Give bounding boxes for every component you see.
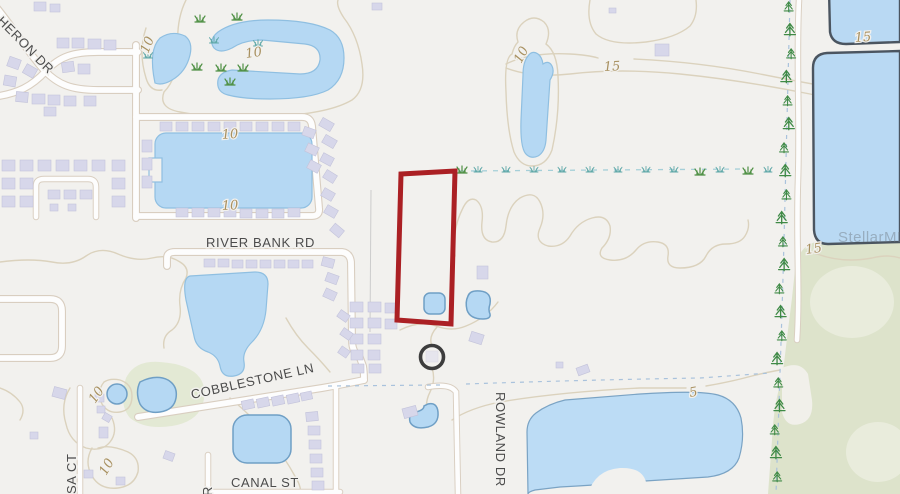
watermark-text: StellarMLS — [838, 229, 900, 246]
street-label-sa-ct: SA CT — [64, 453, 79, 494]
street-label-rowland-dr: ROWLAND DR — [493, 392, 508, 487]
map-canvas[interactable]: N HERON DR RIVER BANK RD COBBLESTONE LN … — [0, 0, 900, 494]
street-label-partial-dr: DR — [200, 486, 215, 494]
contour-label-10: 10 — [221, 198, 238, 214]
street-label-canal-st: CANAL ST — [231, 475, 299, 490]
contour-label-10: 10 — [244, 45, 262, 62]
contour-label-15: 15 — [804, 241, 822, 258]
street-label-river-bank-rd: RIVER BANK RD — [206, 235, 315, 250]
contour-label-15: 15 — [854, 30, 872, 46]
contour-label-10: 10 — [221, 127, 239, 143]
map-circle-marker — [421, 346, 444, 369]
contour-label-15: 15 — [603, 59, 620, 75]
